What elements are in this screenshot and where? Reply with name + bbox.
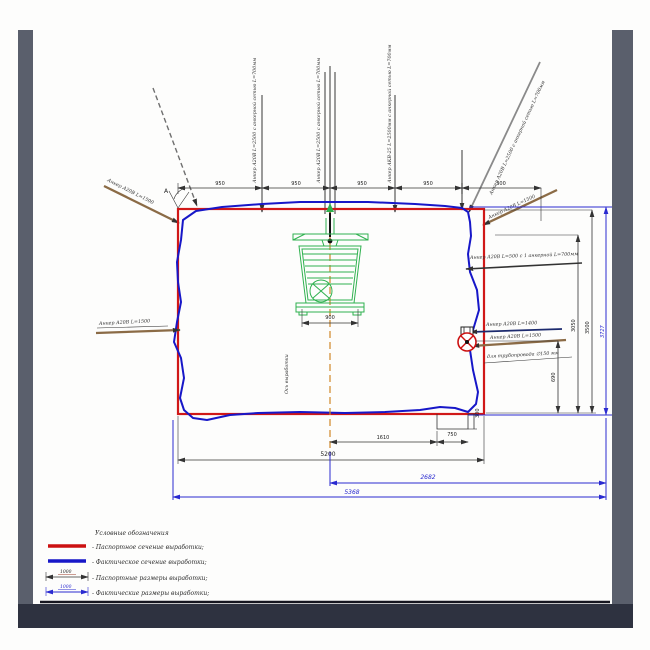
frame-left-bar [18,30,33,628]
right-dimensions: 690 3050 3500 3727 [476,207,606,415]
anchor-label-left-mid: Анкер А20В L=1500 [98,318,151,327]
dim-top-300: 300 [496,181,506,187]
actual-section-outline [174,202,479,420]
drawing-page: А Анкер А20В L=2500 с анкерной сетью L=7… [0,0,650,650]
anchor-label-top-2: Анкер А20В L=2500 с анкерной сетью L=700… [316,58,322,184]
angled-anchor-right [469,62,540,212]
angle-mark-label: А [164,188,169,195]
anchor-label-top-1: Анкер А20В L=2500 с анкерной сетью L=700… [252,58,258,184]
anchor-label-corner-left: Анкер А20В L=1500 [105,177,154,206]
dim-3050: 3050 [571,319,577,332]
anchor-label-top-3: Анкер АКВ-25 L=2500мм с анкерной сетью L… [387,44,393,184]
legend-design-dim-value: 1000 [60,569,72,575]
cross-section-drawing: А Анкер А20В L=2500 с анкерной сетью L=7… [0,0,650,650]
dim-top-2: 950 [291,181,301,187]
dim-top-1: 950 [215,181,225,187]
legend: Условные обозначения - Паспортное сечени… [46,530,209,597]
pipe-symbol [458,327,476,351]
anchor-label-right-wall: Анкер А20В L=500 с 1 анкерной L=700мм [469,251,578,261]
dim-5368: 5368 [344,489,359,496]
dim-5200: 5200 [320,451,335,458]
legend-item-design-dims: - Паспортные размеры выработки; [92,575,208,582]
dim-3727: 3727 [600,324,606,338]
axis-label: Ось выработки [283,354,290,394]
legend-black-dim-swatch: 1000 [46,569,88,581]
legend-blue-dim-swatch: 1000 [46,584,88,596]
dim-750: 750 [447,432,457,438]
dim-top-3: 950 [357,181,367,187]
anchor-label-top-right-diag: Анкер А20В L=2500 с анкерной сетью L=700… [488,80,547,197]
roof-anchors: А Анкер А20В L=2500 с анкерной сетью L=7… [104,44,557,225]
bottom-dimensions: 1610 750 5200 2682 5368 [173,416,606,500]
anchor-label-right-low-1: Анкер А20В L=1400 [485,320,537,328]
legend-title: Условные обозначения [95,530,169,537]
anchor-label-right-low-2: Анкер А20В L=1500 [489,332,542,341]
legend-item-actual-dims: - Фактические размеры выработки; [92,590,209,597]
dim-top-4: 950 [423,181,433,187]
dim-3500: 3500 [585,321,591,334]
dim-690: 690 [551,372,557,382]
legend-item-actual-section: - Фактическое сечение выработки; [92,559,207,566]
legend-item-design-section: - Паспортное сечение выработки; [92,544,204,551]
left-wall-anchor: Анкер А20В L=1500 [96,318,180,333]
legend-actual-dim-value: 1000 [60,584,72,590]
frame-bottom-bar [18,604,633,628]
ditch-outline: 300 [437,408,481,429]
dim-2682: 2682 [420,474,435,481]
frame-right-bar [612,30,633,628]
dim-1610: 1610 [377,435,390,441]
dim-900: 900 [325,315,335,321]
anchor-angle-arc [174,188,186,199]
dim-ditch-300: 300 [475,408,481,418]
